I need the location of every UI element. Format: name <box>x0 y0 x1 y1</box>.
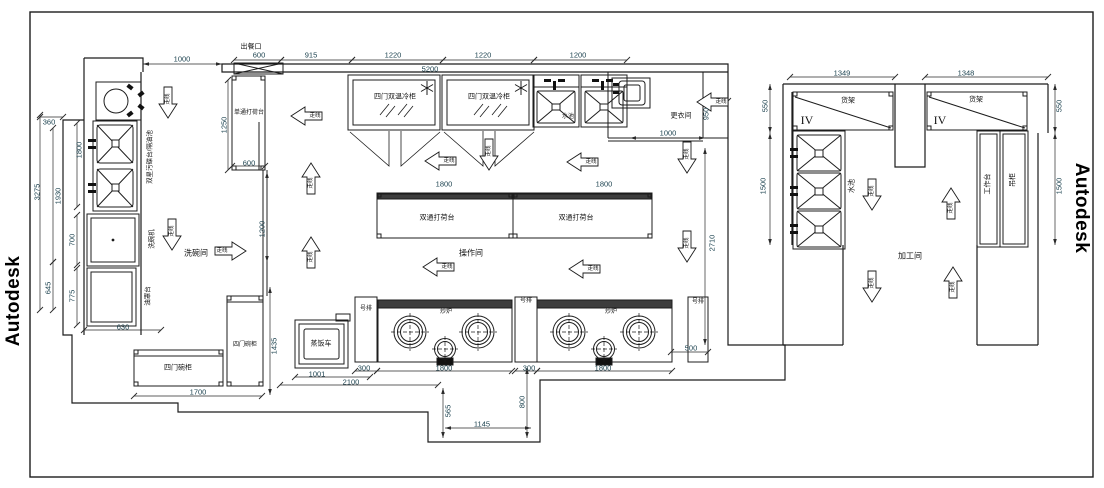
left-plan-equipment <box>87 63 708 386</box>
dim-300-a: 300 <box>358 364 371 373</box>
dim-1800-d: 1800 <box>596 180 613 189</box>
label-roman-iv-1: IV <box>801 113 814 127</box>
hand-wash-sink <box>612 78 650 108</box>
walk-arrow-label: 走线 <box>216 246 228 254</box>
walk-arrow-label: 走线 <box>306 177 314 189</box>
burners <box>391 313 658 362</box>
dishwasher-box <box>87 214 139 266</box>
dim-600-mid: 600 <box>243 159 256 168</box>
dim-1220-a: 1220 <box>385 51 402 60</box>
dim-1800-left: 1800 <box>75 142 84 159</box>
walk-arrow-label: 走线 <box>585 157 597 165</box>
dim-1800-c: 1800 <box>436 180 453 189</box>
walk-arrow-label: 走线 <box>441 262 453 270</box>
room-dishwash: 洗碗间 <box>184 248 208 258</box>
dim-1700: 1700 <box>190 388 207 397</box>
equip-hanging-cabinet: 吊柜 <box>1008 173 1017 187</box>
dim-1145: 1145 <box>474 420 490 429</box>
walk-arrow-label: 走线 <box>443 156 455 164</box>
equip-sink-small: 水池 <box>562 112 574 120</box>
room-operation: 操作间 <box>459 248 483 258</box>
dim-1435: 1435 <box>270 338 279 355</box>
floor-plan-svg: 走线走线走线走线走线走线走线走线走线走线走线走线走线走线走线走线走线走线 出餐口… <box>0 0 1104 488</box>
right-plan-equipment <box>790 92 1028 249</box>
walk-arrow-left: 走线 <box>291 107 322 125</box>
dim-1500-l: 1500 <box>759 178 768 195</box>
walk-arrow-label: 走线 <box>587 264 599 272</box>
equip-wok-range-2: 炒炉 <box>605 307 617 315</box>
dim-3275: 3275 <box>33 184 42 201</box>
dim-1200-v: 1200 <box>258 221 267 238</box>
walk-arrow-label: 走线 <box>306 251 314 263</box>
room-processing: 加工间 <box>898 251 922 261</box>
walk-arrow-label: 走线 <box>867 185 875 197</box>
dim-550-l: 550 <box>761 100 770 113</box>
walk-arrow-down: 走线 <box>863 179 881 210</box>
equip-fridge-1: 四门双温冷柜 <box>374 92 416 101</box>
dim-645: 645 <box>44 282 53 295</box>
single-pass-table-box <box>232 76 265 170</box>
dim-1000-topleft: 1000 <box>174 55 191 64</box>
walk-arrow-down: 走线 <box>163 219 181 250</box>
equip-double-pass-table-2: 双通打荷台 <box>559 213 594 222</box>
dim-2100: 2100 <box>343 378 360 387</box>
walk-arrow-left: 走线 <box>425 152 456 170</box>
walk-arrow-label: 走线 <box>946 202 954 214</box>
walk-arrow-up: 走线 <box>942 188 960 219</box>
walk-arrow-label: 走线 <box>715 97 727 105</box>
walk-arrow-left: 走线 <box>423 258 454 276</box>
equip-dishwasher: 洗碗机 <box>147 229 156 249</box>
equip-shelf-2: 货架 <box>969 95 983 104</box>
walk-arrow-up: 走线 <box>302 163 320 194</box>
dim-1800-b: 1800 <box>595 364 612 373</box>
equip-worktable: 工作台 <box>983 174 992 195</box>
dim-500: 500 <box>685 344 698 353</box>
double-sink-unit <box>88 121 137 211</box>
text-labels: 出餐口6009151220122012005200100036018001930… <box>33 42 1064 429</box>
equip-rice-steamer: 蒸饭车 <box>311 339 332 348</box>
equip-dish-cabinet-v: 四门碗柜 <box>233 340 257 348</box>
dim-360: 360 <box>43 118 56 127</box>
oil-hood-table-box <box>87 268 136 326</box>
dim-775: 775 <box>68 290 77 303</box>
equip-side-table-1: 号排 <box>360 304 372 312</box>
walk-arrow-label: 走线 <box>309 111 321 119</box>
equip-double-pass-table-1: 双通打荷台 <box>420 213 455 222</box>
walk-arrow-up: 走线 <box>302 237 320 268</box>
top-sink-2 <box>581 75 627 127</box>
dim-915: 915 <box>305 51 318 60</box>
cad-drawing-canvas: Autodesk Autodesk <box>0 0 1104 488</box>
dim-300-b: 300 <box>523 364 536 373</box>
equip-single-pass-table: 单通打荷台 <box>234 108 264 116</box>
equip-wok-range-1: 炒炉 <box>440 307 452 315</box>
walk-arrow-right: 走线 <box>215 242 246 260</box>
dim-1349: 1349 <box>834 69 851 78</box>
snowflake-icon <box>515 81 527 95</box>
equip-side-table-3: 号排 <box>692 297 704 305</box>
dim-600-top: 600 <box>253 51 266 60</box>
walk-arrow-label: 走线 <box>948 281 956 293</box>
dim-1250: 1250 <box>220 117 229 134</box>
dim-550-r: 550 <box>1055 100 1064 113</box>
walk-arrow-label: 走线 <box>682 237 690 249</box>
label-roman-iv-2: IV <box>934 113 947 127</box>
pot-wash-unit <box>96 82 145 120</box>
dim-630: 630 <box>117 323 130 332</box>
faucet-icon <box>88 139 96 193</box>
dim-800: 800 <box>518 396 527 409</box>
dim-700: 700 <box>68 234 77 247</box>
equip-shelf-1: 货架 <box>841 96 855 105</box>
walk-arrow-left: 走线 <box>569 260 600 278</box>
right-plan-walls <box>783 84 1048 345</box>
equip-dish-cabinet-h: 四门碗柜 <box>164 363 192 372</box>
walk-arrow-label: 走线 <box>867 277 875 289</box>
room-changing: 更衣间 <box>671 111 692 120</box>
dim-1500-r: 1500 <box>1055 178 1064 195</box>
walk-arrow-down: 走线 <box>678 142 696 173</box>
faucet-icon <box>126 84 144 118</box>
dim-1001: 1001 <box>309 370 326 379</box>
walk-arrow-down: 走线 <box>678 231 696 262</box>
equip-sink-right: 水池 <box>847 179 856 193</box>
walk-arrow-left: 走线 <box>567 153 598 171</box>
fridge-1-box <box>348 75 440 166</box>
equip-dirty-dish-table: 双星污碟台/隔油池 <box>145 130 154 184</box>
snowflake-icon <box>421 81 433 95</box>
dim-1800-a: 1800 <box>436 364 453 373</box>
dim-5200: 5200 <box>422 65 439 74</box>
dim-1348: 1348 <box>958 69 975 78</box>
right-sink-column <box>790 131 845 249</box>
walk-arrow-label: 走线 <box>167 225 175 237</box>
walk-arrow-down: 走线 <box>159 87 177 118</box>
label-serving-window: 出餐口 <box>241 42 262 51</box>
dim-1000-changing: 1000 <box>660 129 677 138</box>
dish-cabinet-vertical <box>227 296 263 386</box>
dim-2710: 2710 <box>708 235 717 252</box>
dim-1200-top: 1200 <box>570 51 587 60</box>
walk-arrow-label: 走线 <box>163 93 171 105</box>
walk-arrow-label: 走线 <box>484 145 492 157</box>
equip-oil-hood-table: 油罩台 <box>143 286 152 306</box>
walk-arrow-down: 走线 <box>863 271 881 302</box>
walk-arrow-label: 走线 <box>682 148 690 160</box>
walk-arrow-up: 走线 <box>944 267 962 298</box>
dim-950: 950 <box>702 108 711 121</box>
dim-1220-b: 1220 <box>475 51 492 60</box>
equip-side-table-2: 号排 <box>520 296 532 304</box>
equip-fridge-2: 四门双温冷柜 <box>468 92 510 101</box>
dim-565: 565 <box>444 405 453 418</box>
dim-1930: 1930 <box>54 188 63 205</box>
